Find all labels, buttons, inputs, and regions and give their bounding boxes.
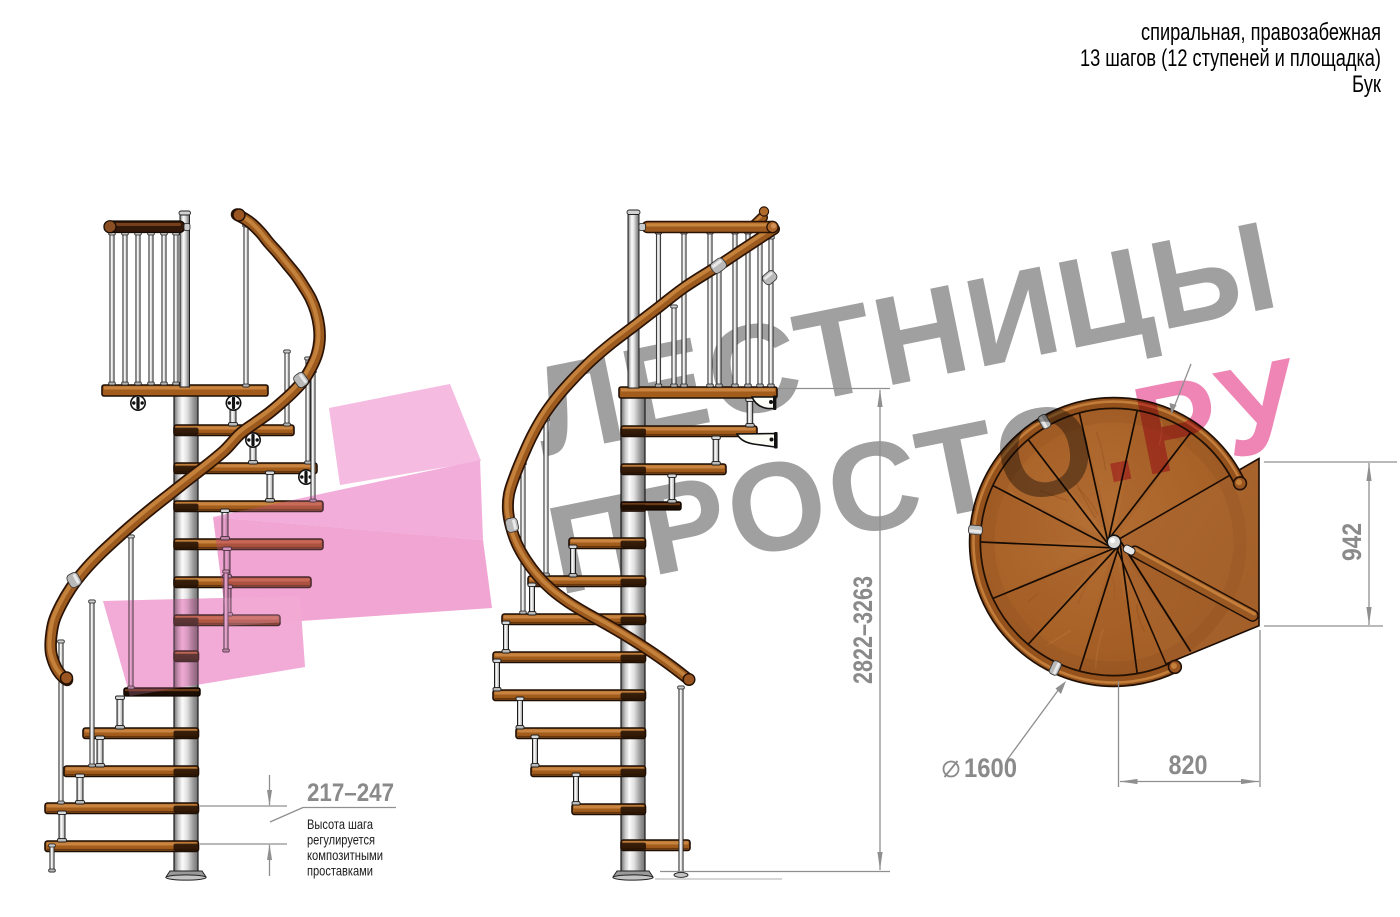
svg-text:регулируется: регулируется (307, 832, 375, 848)
svg-text:820: 820 (1169, 750, 1208, 780)
svg-text:спиральная, правозабежная: спиральная, правозабежная (1141, 19, 1381, 46)
svg-text:Бук: Бук (1352, 71, 1381, 98)
svg-text:2822–3263: 2822–3263 (848, 576, 878, 684)
svg-text:композитными: композитными (307, 847, 383, 863)
svg-text:проставками: проставками (307, 863, 373, 879)
svg-text:13 шагов (12 ступеней и площад: 13 шагов (12 ступеней и площадка) (1080, 45, 1381, 72)
svg-text:942: 942 (1337, 523, 1367, 561)
svg-text:217–247: 217–247 (307, 779, 394, 807)
svg-text:Высота шага: Высота шага (307, 816, 373, 832)
